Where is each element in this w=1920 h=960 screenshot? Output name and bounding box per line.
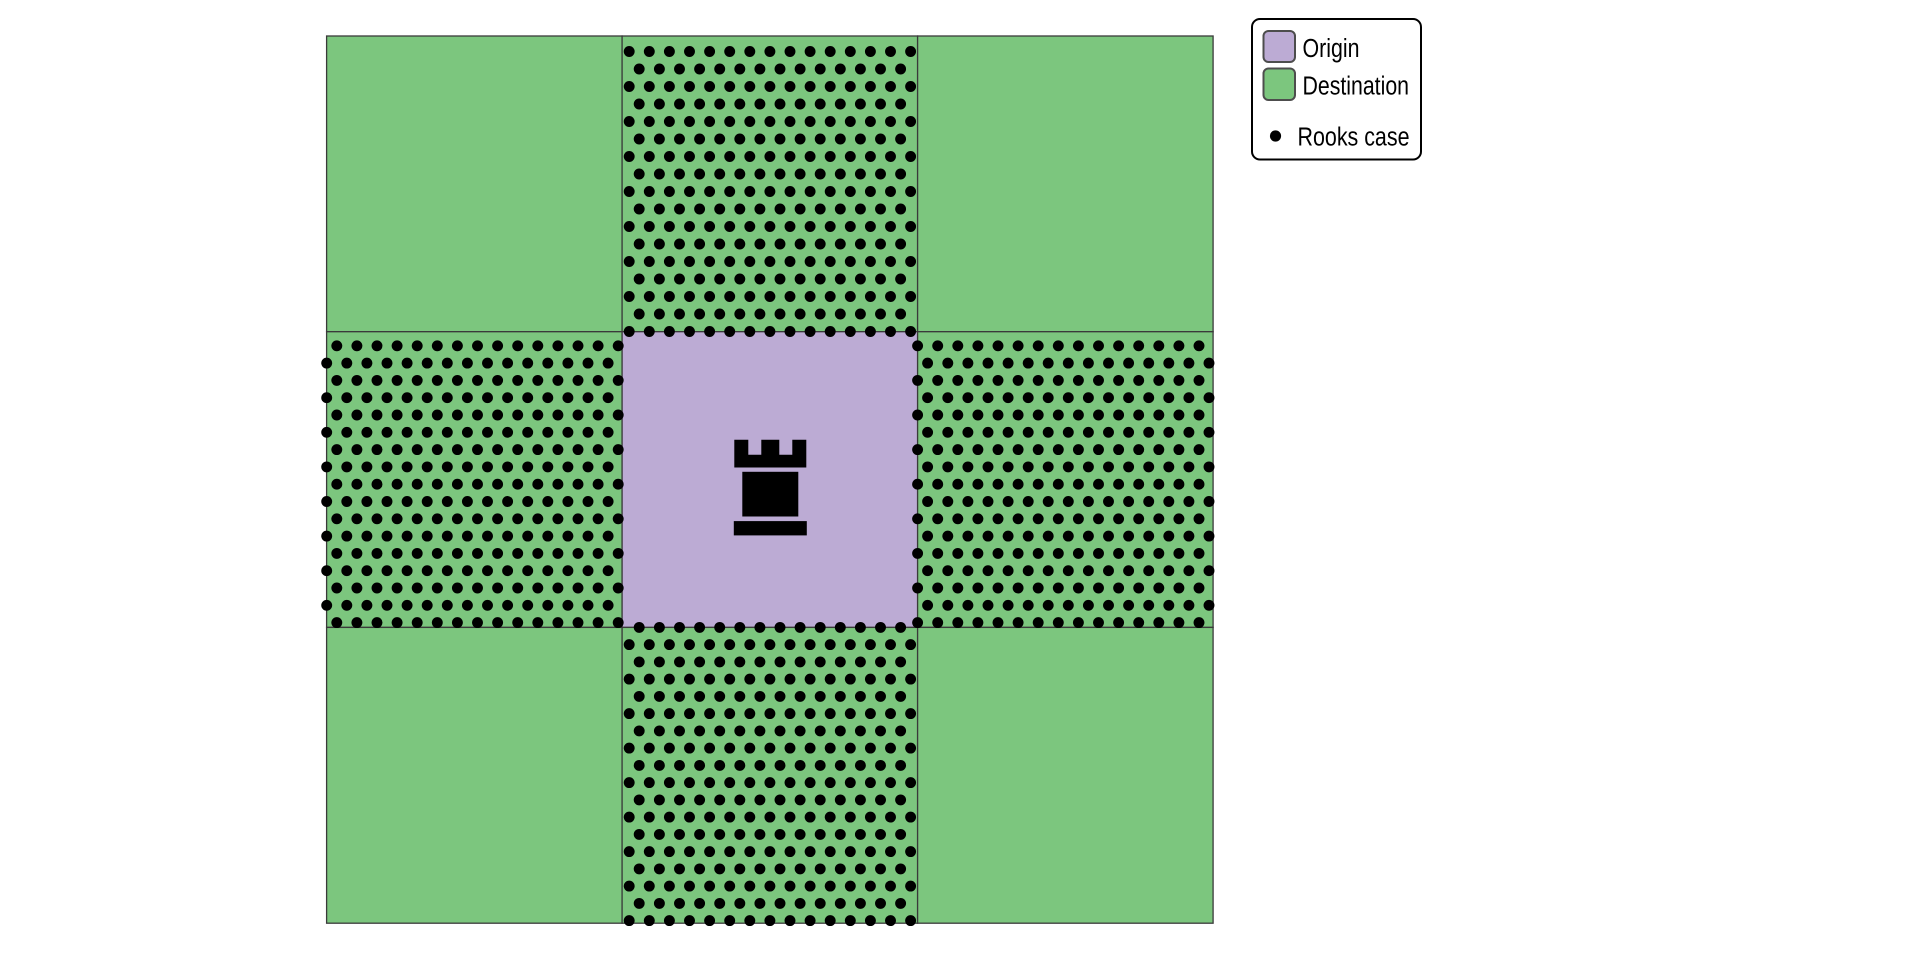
svg-text:Destination: Destination — [1303, 73, 1410, 101]
svg-text:Origin: Origin — [1303, 35, 1360, 63]
svg-text:Rooks case: Rooks case — [1298, 124, 1410, 152]
